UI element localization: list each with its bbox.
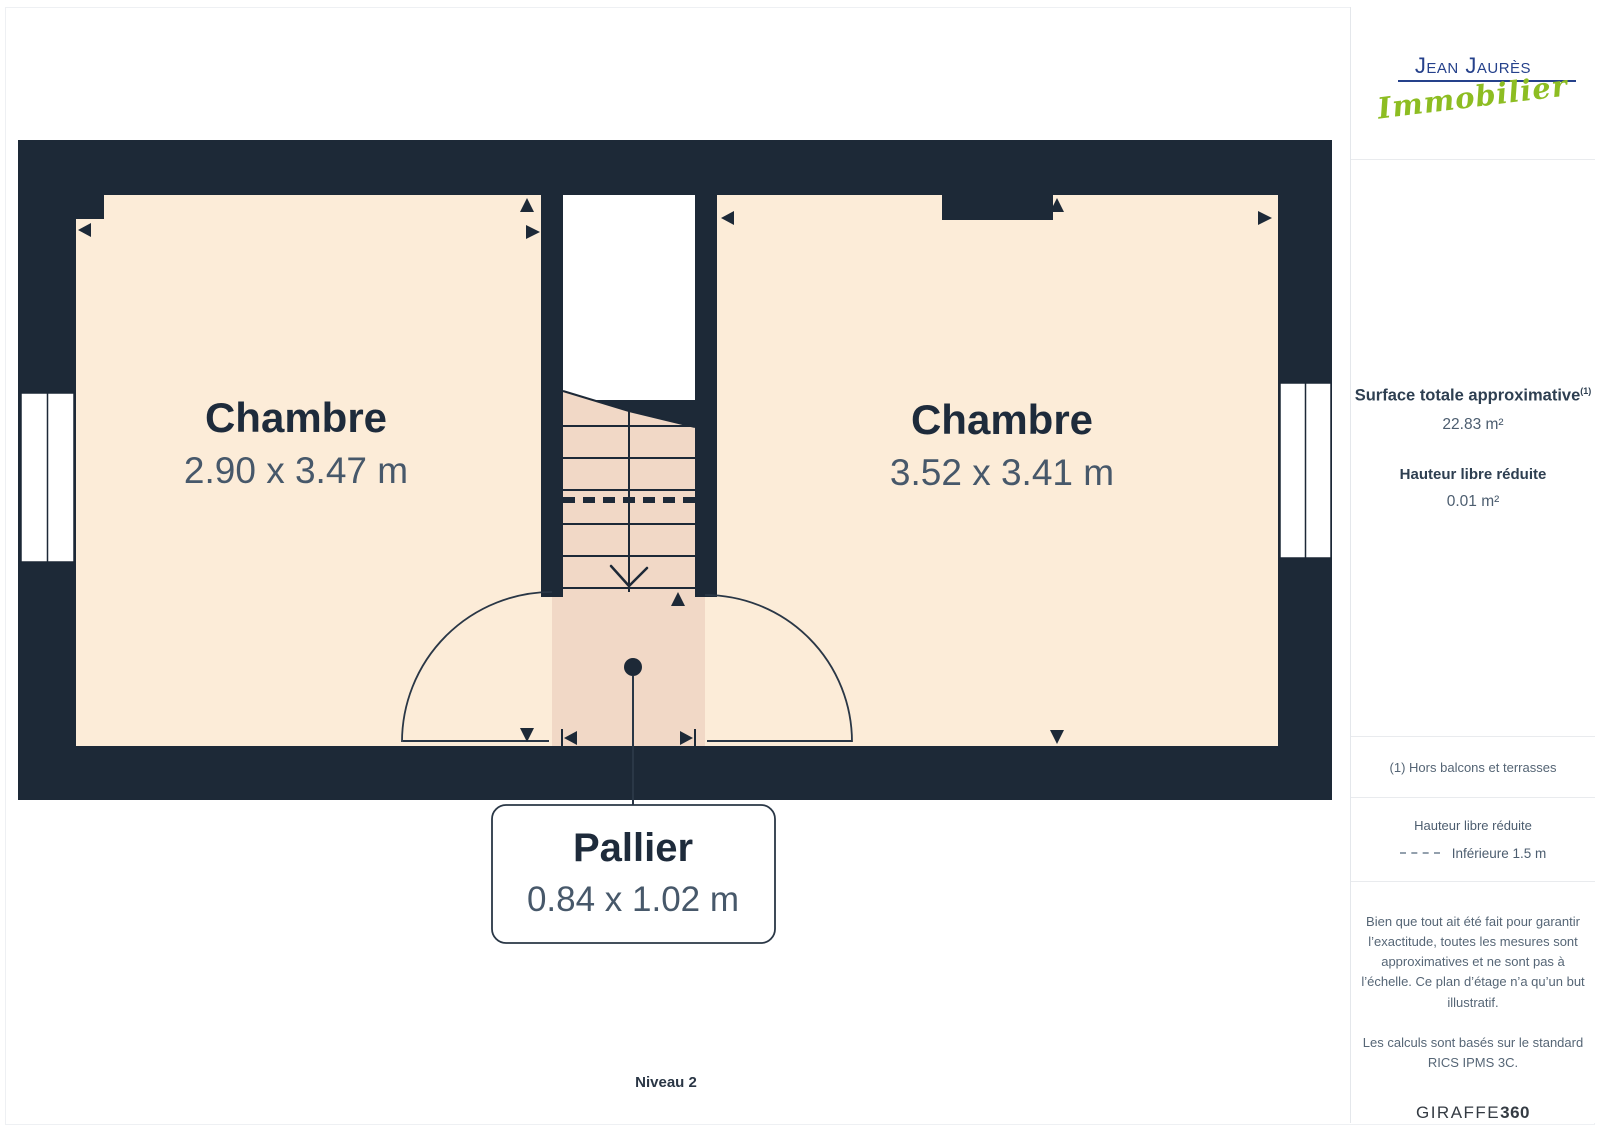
room-left-dims: 2.90 x 3.47 m bbox=[184, 450, 408, 491]
footnote-text: (1) Hors balcons et terrasses bbox=[1390, 760, 1557, 775]
stairwell-wall-right bbox=[695, 195, 717, 597]
wall-notch-right bbox=[942, 195, 1053, 220]
giraffe360-brand: GIRAFFE360 bbox=[1416, 1103, 1530, 1123]
disclaimer-text: Bien que tout ait été fait pour garantir… bbox=[1360, 912, 1586, 1013]
agency-logo: Jean Jaurès Immobilier bbox=[1351, 7, 1595, 159]
brand-name: GIRAFFE bbox=[1416, 1103, 1500, 1122]
landing-dims: 0.84 x 1.02 m bbox=[527, 880, 739, 919]
surface-footnote-mark: (1) bbox=[1580, 386, 1591, 396]
info-sidebar: Jean Jaurès Immobilier Surface totale ap… bbox=[1350, 7, 1595, 1123]
camera-dot bbox=[624, 658, 642, 676]
standard-text: Les calculs sont basés sur le standard R… bbox=[1358, 1033, 1588, 1073]
stairwell-wall-left bbox=[541, 195, 563, 597]
room-right-dims: 3.52 x 3.41 m bbox=[890, 452, 1114, 493]
room-left-name: Chambre bbox=[205, 394, 387, 441]
floorplan-viewer: Pallier 0.84 x 1.02 m Chambre 2.90 x 3.4… bbox=[0, 0, 1600, 1130]
footnote-section: (1) Hors balcons et terrasses bbox=[1351, 736, 1595, 796]
window-left bbox=[21, 393, 74, 562]
reduced-height-label: Hauteur libre réduite bbox=[1400, 466, 1547, 483]
stair-void bbox=[563, 195, 695, 400]
reduced-height-value: 0.01 m² bbox=[1447, 493, 1500, 511]
landing-name: Pallier bbox=[573, 826, 693, 870]
legend-title: Hauteur libre réduite bbox=[1414, 818, 1532, 833]
landing-label-box: Pallier 0.84 x 1.02 m bbox=[492, 805, 775, 943]
dashed-line-sample bbox=[1400, 852, 1440, 854]
brand-suffix: 360 bbox=[1500, 1103, 1530, 1122]
room-right-name: Chambre bbox=[911, 396, 1093, 443]
legend-label: Inférieure 1.5 m bbox=[1452, 846, 1547, 861]
disclaimer-section: Bien que tout ait été fait pour garantir… bbox=[1351, 881, 1595, 1123]
legend-section: Hauteur libre réduite Inférieure 1.5 m bbox=[1351, 797, 1595, 881]
surface-value: 22.83 m² bbox=[1442, 416, 1503, 434]
floorplan-svg: Pallier 0.84 x 1.02 m Chambre 2.90 x 3.4… bbox=[0, 0, 1350, 1130]
surface-label: Surface totale approximative(1) bbox=[1355, 386, 1592, 406]
level-label: Niveau 2 bbox=[635, 1074, 697, 1091]
window-right bbox=[1280, 383, 1331, 558]
stairwell bbox=[541, 195, 717, 597]
wall-notch-left bbox=[76, 195, 104, 219]
surface-section: Surface totale approximative(1) 22.83 m²… bbox=[1351, 159, 1595, 736]
